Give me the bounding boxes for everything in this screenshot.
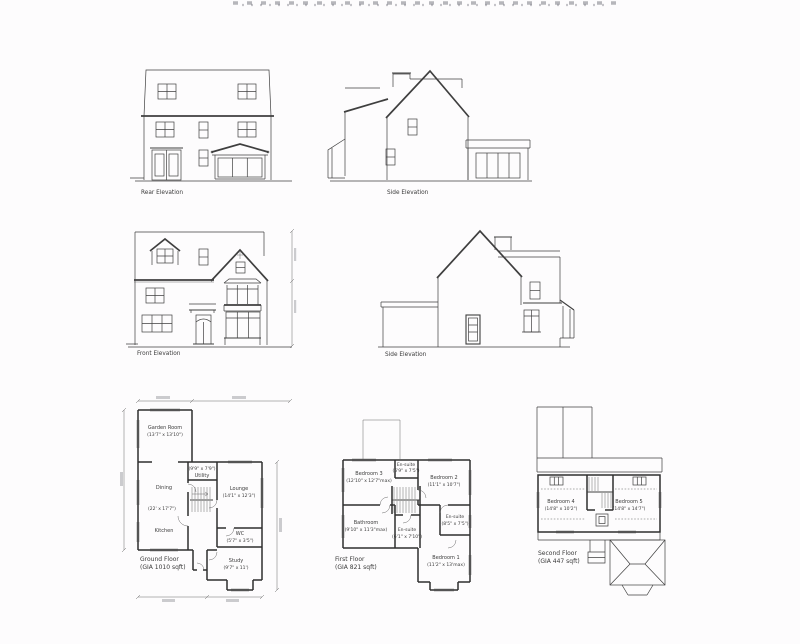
room-label-wc: WC: [236, 531, 245, 537]
room-dims-bedroom4: (14'8" x 10'2"): [545, 506, 578, 512]
room-label-ensuite-right: En-suite: [446, 514, 465, 520]
room-dims-bedroom5: (14'8" x 14'7"): [613, 506, 646, 512]
first-floor-plan: Bedroom 3 (12'10" x 12'7"max) En-suite (…: [335, 420, 471, 591]
side-elevation-lower-label: Side Elevation: [385, 352, 427, 358]
front-first-floor-window: [146, 288, 164, 303]
ground-floor-plan: Garden Room (13'7" x 13'10") Dining (22'…: [120, 396, 292, 602]
rear-elevation-label: Rear Elevation: [141, 190, 183, 196]
room-dims-utility: (9'9" x 7'9"): [188, 466, 215, 472]
front-bay-window: [224, 279, 261, 345]
front-elevation-drawing: Front Elevation: [126, 229, 296, 357]
room-dims-lounge: (14'1" x 12'3"): [223, 493, 256, 499]
architectural-drawing-sheet: Rear Elevation Side Elevation: [0, 0, 800, 644]
room-label-bathroom: Bathroom: [354, 520, 379, 526]
room-label-bedroom1: Bedroom 1: [432, 555, 459, 561]
room-label-bedroom2: Bedroom 2: [430, 475, 457, 481]
side-lower-bay-window: [560, 300, 574, 347]
side-elevation-upper-drawing: Side Elevation: [328, 71, 532, 196]
room-dims-ensuite-top: (6'9" x 7'5"): [392, 468, 419, 474]
room-label-utility: Utility: [195, 473, 210, 479]
stairs: [190, 487, 213, 512]
ground-floor-dimension-lines: [120, 396, 292, 602]
rear-doors: [150, 148, 183, 180]
room-dims-wc: (5'7" x 3'5"): [226, 538, 253, 544]
second-floor-plan: Bedroom 4 (14'8" x 10'2") Bedroom 5 (14'…: [537, 407, 665, 595]
front-dormer-window: [150, 239, 180, 265]
side-upper-window-1: [408, 119, 417, 135]
ground-floor-area: (GIA 1010 sqft): [140, 564, 186, 571]
ground-floor-label: Ground Floor: [140, 556, 179, 563]
room-dims-study: (9'7" x 11'): [223, 565, 248, 571]
room-label-bedroom3: Bedroom 3: [355, 471, 382, 477]
room-dims-ensuite-mid: (6'1" x 7'10"): [392, 534, 422, 540]
rear-elevation-drawing: Rear Elevation: [130, 70, 292, 196]
room-label-bedroom5: Bedroom 5: [615, 499, 642, 505]
room-label-lounge: Lounge: [230, 486, 248, 492]
rear-bay-window: [211, 144, 269, 179]
side-elevation-lower-drawing: Side Elevation: [378, 231, 574, 358]
room-dims-bathroom: (9'10" x 11'3"max): [345, 527, 388, 533]
room-dims-ensuite-right: (8'5" x 7'5"): [441, 521, 468, 527]
front-door-with-canopy: [189, 304, 216, 344]
room-label-ensuite-mid: En-suite: [398, 527, 417, 533]
side-lower-door: [466, 315, 480, 344]
front-landing-window: [199, 249, 208, 265]
side-upper-garage: [466, 140, 530, 180]
drawing-canvas: Rear Elevation Side Elevation: [0, 0, 800, 644]
stairs: [392, 486, 420, 514]
second-floor-area: (GIA 447 sqft): [538, 558, 580, 565]
second-floor-label: Second Floor: [538, 550, 577, 557]
side-lower-windows: [522, 282, 562, 332]
front-gable: [211, 250, 268, 281]
first-floor-area: (GIA 821 sqft): [335, 564, 377, 571]
side-upper-bay-window: [328, 139, 345, 178]
room-dims-bedroom2: (11'1" x 10'7"): [428, 482, 461, 488]
room-dims-bedroom1: (11'2" x 13'max): [427, 562, 465, 568]
front-elevation-label: Front Elevation: [137, 351, 181, 357]
rear-small-window: [199, 150, 208, 166]
rear-first-floor-windows: [156, 122, 256, 138]
room-dims-bedroom3: (12'10" x 12'7"max): [346, 478, 392, 484]
room-label-dining: Dining: [156, 485, 172, 491]
room-dims-dining: (22' x 17'7"): [148, 506, 176, 512]
front-dimension-line: [290, 229, 296, 348]
room-label-garden-room: Garden Room: [148, 425, 182, 431]
side-lower-garage: [381, 302, 438, 347]
first-floor-label: First Floor: [335, 556, 365, 563]
front-ground-floor-window: [142, 315, 172, 332]
room-label-study: Study: [229, 558, 243, 564]
cropped-title-text-fragment: [233, 3, 618, 5]
stairs: [587, 475, 613, 526]
room-label-ensuite-top: En-suite: [397, 462, 416, 468]
room-dims-garden-room: (13'7" x 13'10"): [147, 432, 183, 438]
room-label-kitchen: Kitchen: [155, 528, 174, 534]
side-elevation-upper-label: Side Elevation: [387, 190, 429, 196]
rear-upper-windows: [158, 84, 256, 99]
room-label-bedroom4: Bedroom 4: [547, 499, 574, 505]
